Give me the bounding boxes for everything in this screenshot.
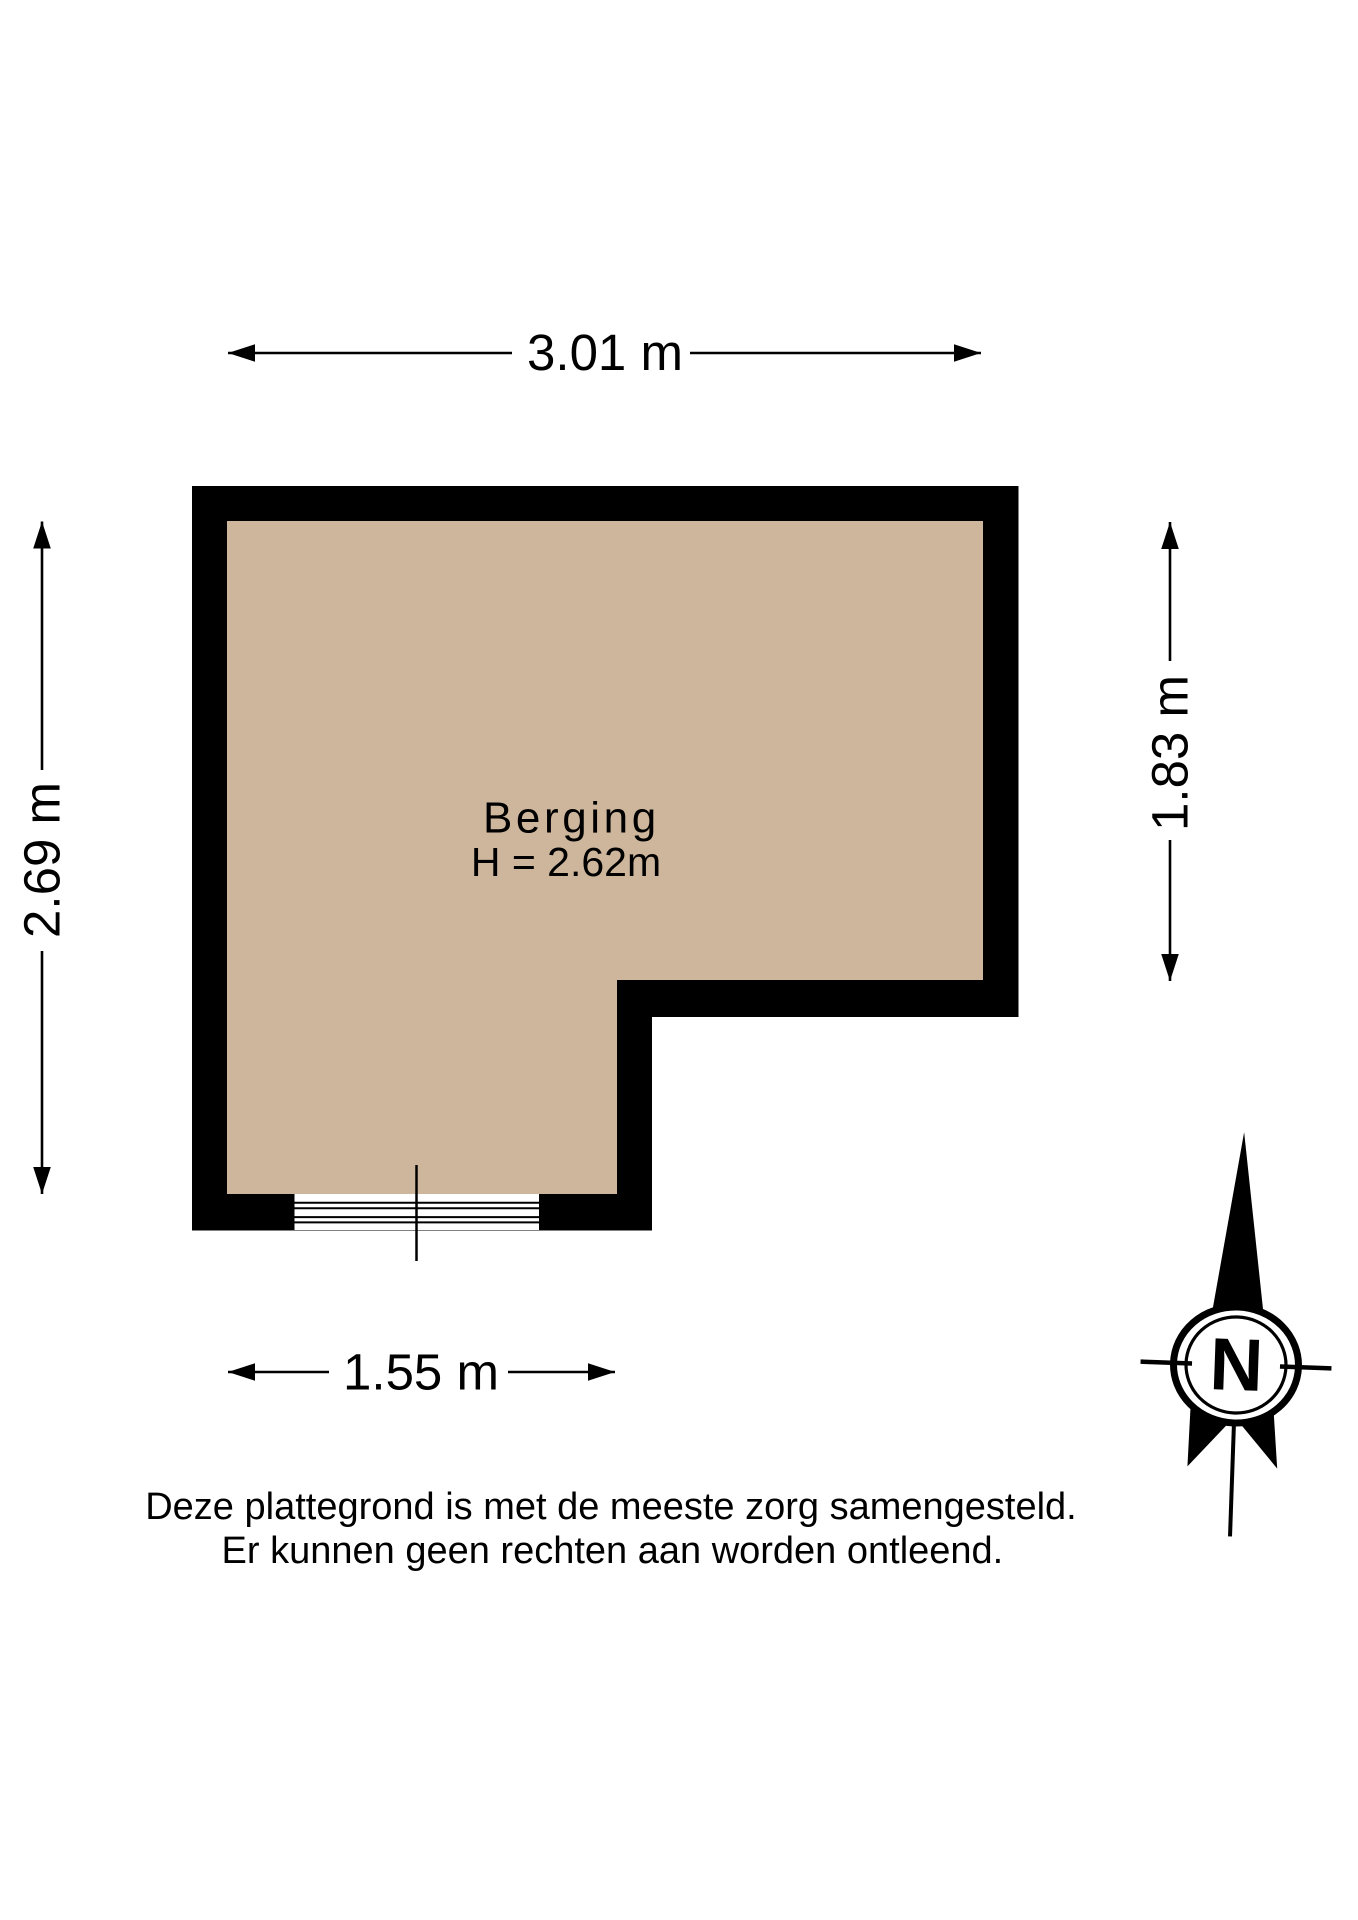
svg-text:N: N (1208, 1322, 1264, 1407)
svg-text:H = 2.62m: H = 2.62m (471, 839, 661, 885)
svg-text:Er kunnen geen rechten aan wor: Er kunnen geen rechten aan worden ontlee… (222, 1530, 1004, 1572)
svg-text:Deze plattegrond is met de mee: Deze plattegrond is met de meeste zorg s… (145, 1486, 1077, 1528)
svg-text:1.83 m: 1.83 m (1142, 675, 1199, 831)
svg-text:Berging: Berging (483, 793, 660, 842)
svg-text:3.01 m: 3.01 m (527, 324, 683, 381)
svg-text:1.55 m: 1.55 m (343, 1343, 499, 1400)
svg-text:2.69 m: 2.69 m (14, 782, 71, 938)
